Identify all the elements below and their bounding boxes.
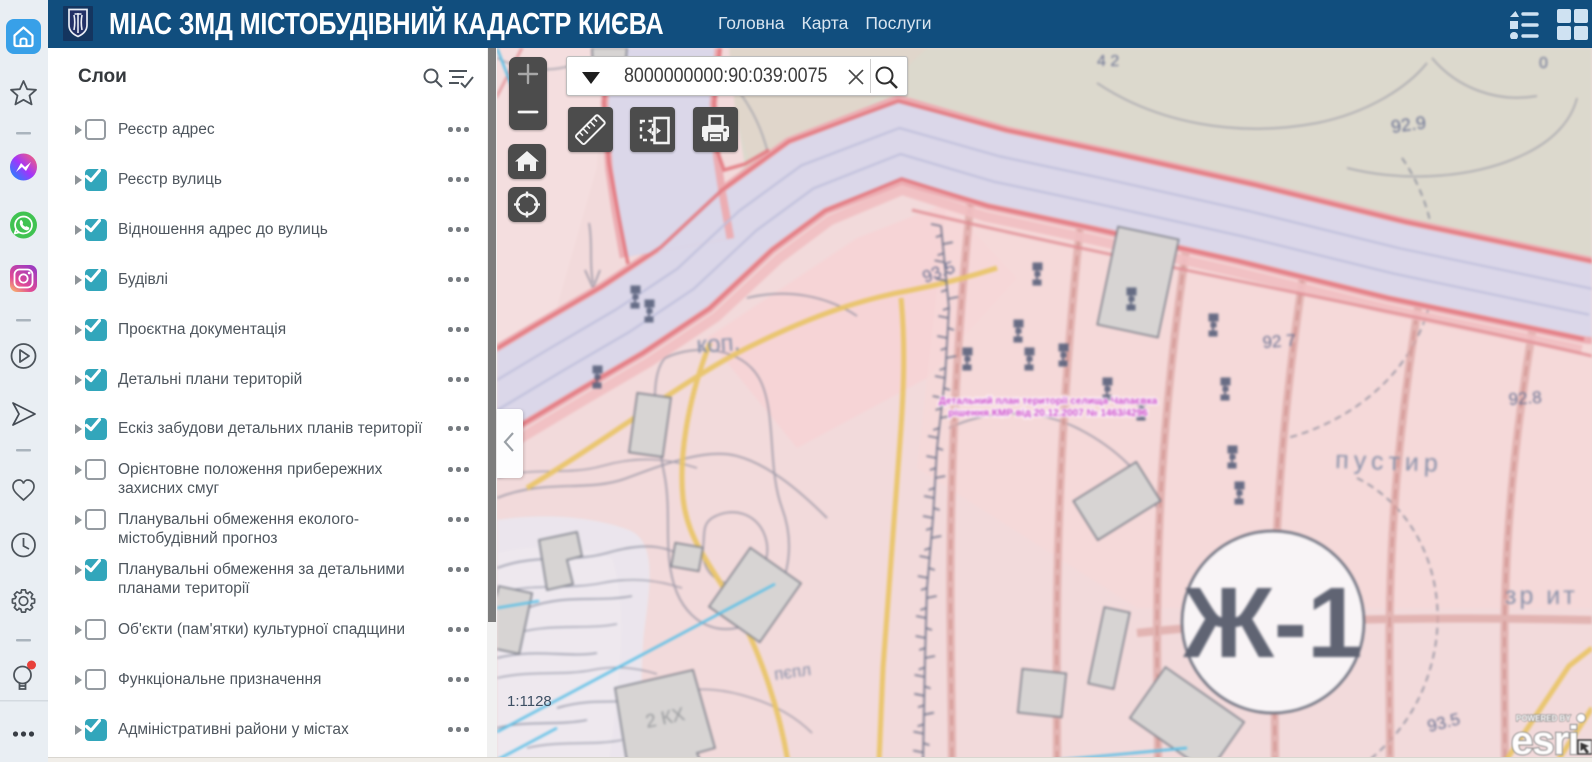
svg-text:esri: esri [1511, 719, 1578, 762]
svg-text:4 2: 4 2 [1097, 53, 1119, 70]
svg-text:0: 0 [1539, 55, 1548, 72]
svg-text:92 7: 92 7 [1262, 331, 1296, 352]
svg-text:зр ит: зр ит [1505, 582, 1578, 610]
svg-text:коп.: коп. [696, 329, 742, 359]
svg-text:рішення КМР від 20.12.2007 №: рішення КМР від 20.12.2007 № 1463/4296 [948, 408, 1148, 419]
svg-text:92.8: 92.8 [1508, 388, 1542, 409]
svg-text:Детальний план території селищ: Детальний план території селища Чапаєвка [939, 396, 1158, 407]
svg-text:пустир: пустир [1335, 446, 1443, 478]
svg-text:Ж-1: Ж-1 [1182, 567, 1362, 679]
